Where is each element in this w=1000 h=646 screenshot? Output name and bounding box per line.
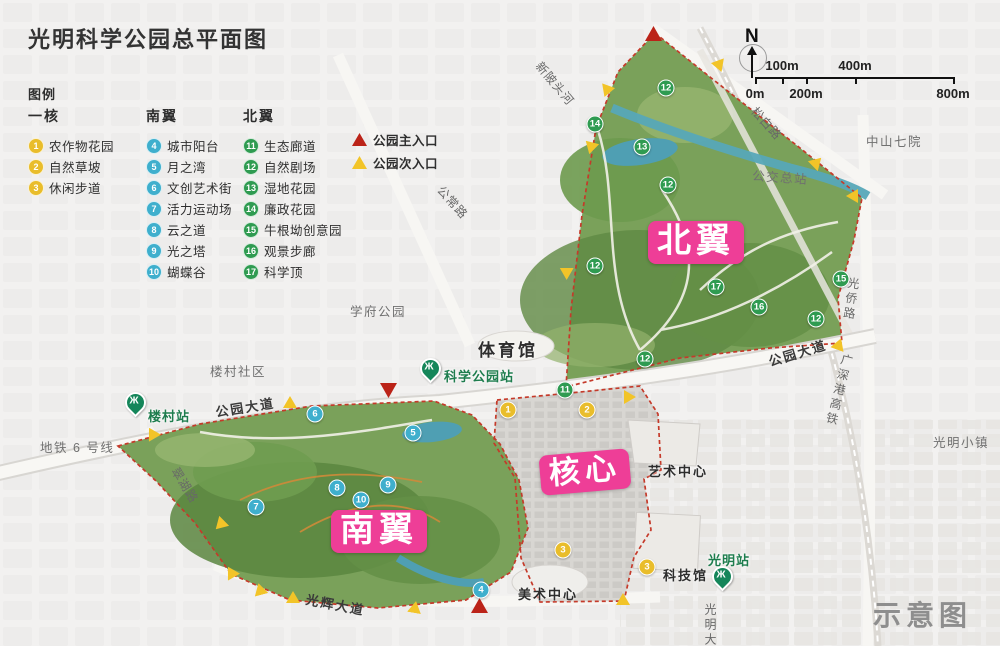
station-name: 科学公园站 <box>444 366 514 385</box>
legend-item-label: 自然剧场 <box>264 157 316 176</box>
legend-item-label: 牛根坳创意园 <box>264 220 342 239</box>
legend-item-label: 光之塔 <box>167 241 206 260</box>
legend-item-label: 活力运动场 <box>167 199 232 218</box>
map-label-area: 楼村社区 <box>210 361 266 380</box>
legend-item-label: 月之湾 <box>167 157 206 176</box>
legend-item-label: 文创艺术街 <box>167 178 232 197</box>
legend-item: 3休闲步道 <box>28 177 114 198</box>
poi-marker-15: 15 <box>833 271 850 288</box>
page-title: 光明科学公园总平面图 <box>28 22 458 54</box>
legend-item: 8云之道 <box>146 219 232 240</box>
legend-panel: 光明科学公园总平面图 图例 一核1农作物花园2自然草坡3休闲步道南翼4城市阳台5… <box>28 22 458 54</box>
legend-item-label: 城市阳台 <box>167 136 219 155</box>
zone-label-south-wing: 南翼 <box>331 510 427 553</box>
legend-item-label: 自然草坡 <box>49 157 101 176</box>
legend-item: 10蝴蝶谷 <box>146 261 232 282</box>
legend-item-label: 廉政花园 <box>264 199 316 218</box>
map-label-road: 光明大道 <box>702 603 719 646</box>
legend-number-badge: 1 <box>28 138 44 154</box>
poi-marker-3: 3 <box>639 559 656 576</box>
legend-item: 14廉政花园 <box>243 198 342 219</box>
legend-heading: 图例 <box>28 84 56 103</box>
map-label-area: 地铁 6 号线 <box>40 437 114 456</box>
poi-marker-16: 16 <box>751 299 768 316</box>
legend-item: 11生态廊道 <box>243 135 342 156</box>
legend-group-south: 南翼4城市阳台5月之湾6文创艺术街7活力运动场8云之道9光之塔10蝴蝶谷 <box>146 106 232 282</box>
legend-number-badge: 11 <box>243 138 259 154</box>
legend-item: 6文创艺术街 <box>146 177 232 198</box>
entrance-legend: 公园主入口公园次入口 <box>352 128 438 174</box>
legend-number-badge: 14 <box>243 201 259 217</box>
map-label-building-lg: 体育馆 <box>478 336 538 361</box>
legend-item: 4城市阳台 <box>146 135 232 156</box>
poi-marker-11: 11 <box>557 382 574 399</box>
poi-marker-2: 2 <box>579 402 596 419</box>
map-label-building: 艺术中心 <box>648 461 708 480</box>
poi-marker-14: 14 <box>587 116 604 133</box>
legend-item-label: 生态廊道 <box>264 136 316 155</box>
entrance-legend-row: 公园主入口 <box>352 128 438 151</box>
poi-marker-12: 12 <box>808 311 825 328</box>
legend-item-label: 湿地花园 <box>264 178 316 197</box>
legend-item: 17科学顶 <box>243 261 342 282</box>
poi-marker-13: 13 <box>634 139 651 156</box>
metro-logo-icon: Ж <box>713 570 730 581</box>
poi-marker-8: 8 <box>329 480 346 497</box>
legend-item-label: 休闲步道 <box>49 178 101 197</box>
scale-tick <box>953 77 955 84</box>
legend-group-title: 南翼 <box>146 106 232 126</box>
secondary-entrance-icon <box>352 156 367 169</box>
map-label-area: 中山七院 <box>866 131 922 150</box>
legend-number-badge: 7 <box>146 201 162 217</box>
legend-number-badge: 6 <box>146 180 162 196</box>
legend-group-north: 北翼11生态廊道12自然剧场13湿地花园14廉政花园15牛根坳创意园16观景步廊… <box>243 106 342 282</box>
zone-label-north-wing: 北翼 <box>648 221 744 264</box>
scale-tick <box>806 77 808 84</box>
scale-label: 400m <box>838 58 871 73</box>
legend-number-badge: 16 <box>243 243 259 259</box>
scale-tick <box>855 77 857 84</box>
legend-item-label: 云之道 <box>167 220 206 239</box>
main-entrance-icon <box>352 133 367 146</box>
legend-item-label: 科学顶 <box>264 262 303 281</box>
watermark: 示意图 <box>873 594 972 634</box>
legend-number-badge: 13 <box>243 180 259 196</box>
legend-number-badge: 4 <box>146 138 162 154</box>
scale-label: 0m <box>746 86 765 101</box>
legend-number-badge: 8 <box>146 222 162 238</box>
legend-item: 15牛根坳创意园 <box>243 219 342 240</box>
poi-marker-12: 12 <box>637 351 654 368</box>
legend-item: 1农作物花园 <box>28 135 114 156</box>
scale-label: 200m <box>789 86 822 101</box>
legend-item-label: 农作物花园 <box>49 136 114 155</box>
entrance-legend-label: 公园次入口 <box>373 153 438 172</box>
poi-marker-1: 1 <box>500 402 517 419</box>
legend-number-badge: 15 <box>243 222 259 238</box>
poi-marker-10: 10 <box>353 492 370 509</box>
legend-number-badge: 10 <box>146 264 162 280</box>
metro-logo-icon: Ж <box>421 362 438 373</box>
poi-marker-4: 4 <box>473 582 490 599</box>
map-art <box>0 0 1000 646</box>
legend-group-core: 一核1农作物花园2自然草坡3休闲步道 <box>28 106 114 198</box>
scale-tick <box>755 77 757 84</box>
scale-bar-line <box>755 77 953 79</box>
legend-number-badge: 2 <box>28 159 44 175</box>
legend-number-badge: 12 <box>243 159 259 175</box>
legend-item-label: 观景步廊 <box>264 241 316 260</box>
entrance-legend-row: 公园次入口 <box>352 151 438 174</box>
station-name: 光明站 <box>708 550 750 569</box>
map-label-area: 学府公园 <box>350 301 406 320</box>
poi-marker-3: 3 <box>555 542 572 559</box>
legend-item: 12自然剧场 <box>243 156 342 177</box>
zone-label-core: 核心 <box>538 448 631 495</box>
scale-label: 100m <box>765 58 798 73</box>
legend-item-label: 蝴蝶谷 <box>167 262 206 281</box>
legend-item: 9光之塔 <box>146 240 232 261</box>
poi-marker-7: 7 <box>248 499 265 516</box>
poi-marker-12: 12 <box>658 80 675 97</box>
poi-marker-9: 9 <box>380 477 397 494</box>
poi-marker-6: 6 <box>307 406 324 423</box>
map-label-area: 公交总站 <box>752 165 809 188</box>
legend-item: 2自然草坡 <box>28 156 114 177</box>
metro-logo-icon: Ж <box>126 396 143 407</box>
poi-marker-12: 12 <box>660 177 677 194</box>
map-label-building: 美术中心 <box>518 584 578 603</box>
legend-item: 16观景步廊 <box>243 240 342 261</box>
legend-item: 5月之湾 <box>146 156 232 177</box>
poi-marker-5: 5 <box>405 425 422 442</box>
poi-marker-12: 12 <box>587 258 604 275</box>
scale-tick <box>782 77 784 84</box>
station-name: 楼村站 <box>148 406 190 425</box>
legend-number-badge: 17 <box>243 264 259 280</box>
legend-item: 7活力运动场 <box>146 198 232 219</box>
legend-number-badge: 3 <box>28 180 44 196</box>
legend-group-title: 一核 <box>28 106 114 126</box>
entrance-legend-label: 公园主入口 <box>373 130 438 149</box>
legend-item: 13湿地花园 <box>243 177 342 198</box>
map-label-building: 科技馆 <box>663 565 708 584</box>
map-canvas: 光明科学公园总平面图 图例 一核1农作物花园2自然草坡3休闲步道南翼4城市阳台5… <box>0 0 1000 646</box>
legend-group-title: 北翼 <box>243 106 342 126</box>
legend-number-badge: 5 <box>146 159 162 175</box>
map-label-area: 光明小镇 <box>933 432 989 451</box>
scale-label: 800m <box>936 86 969 101</box>
legend-number-badge: 9 <box>146 243 162 259</box>
poi-marker-17: 17 <box>708 279 725 296</box>
